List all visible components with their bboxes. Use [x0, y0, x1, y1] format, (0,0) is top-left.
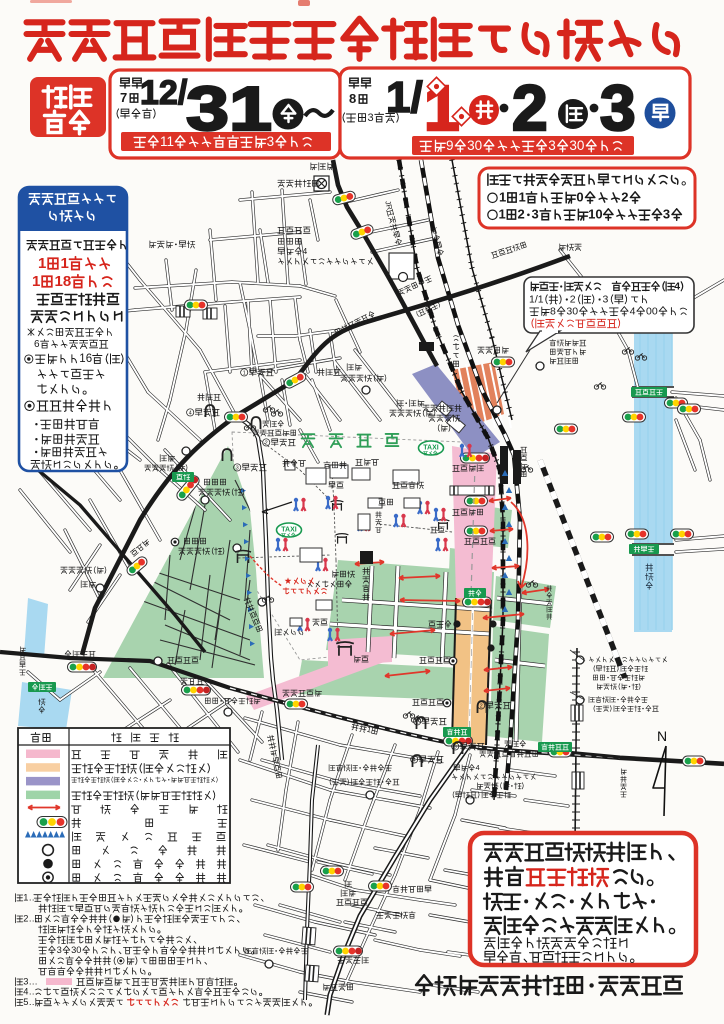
svg-text:TAXI: TAXI	[423, 445, 438, 452]
svg-text:4: 4	[674, 280, 680, 292]
svg-text:1…: 1…	[23, 892, 37, 902]
svg-text:30: 30	[71, 945, 81, 955]
svg-text:7: 7	[120, 90, 127, 105]
svg-text:9: 9	[446, 138, 454, 153]
svg-text:2: 2	[512, 72, 548, 144]
svg-text:4: 4	[413, 757, 416, 763]
svg-text:2: 2	[480, 703, 483, 709]
svg-text:2: 2	[570, 293, 576, 305]
svg-text:2: 2	[621, 189, 628, 204]
svg-text:5…: 5…	[23, 997, 37, 1007]
svg-text:3: 3	[600, 72, 636, 144]
svg-text:30: 30	[467, 138, 482, 153]
svg-text:3: 3	[57, 945, 62, 955]
svg-text:1: 1	[499, 206, 506, 221]
svg-text:4…: 4…	[23, 986, 37, 996]
svg-text:N: N	[657, 728, 667, 744]
svg-text:2: 2	[518, 206, 525, 221]
svg-text:4: 4	[476, 763, 480, 772]
svg-text:3: 3	[548, 138, 556, 153]
svg-text:TAXI: TAXI	[281, 527, 296, 534]
svg-text:1/: 1/	[386, 73, 423, 122]
svg-text:2: 2	[265, 440, 268, 446]
svg-text:1: 1	[243, 370, 246, 376]
svg-text:4: 4	[630, 305, 636, 317]
svg-text:6: 6	[34, 339, 40, 350]
svg-text:8: 8	[550, 305, 556, 317]
svg-text:12/: 12/	[140, 74, 188, 112]
svg-text:2…: 2…	[23, 913, 37, 923]
svg-text:00: 00	[646, 305, 658, 317]
svg-text:1: 1	[32, 273, 40, 290]
svg-text:30: 30	[569, 138, 584, 153]
svg-text:8: 8	[349, 91, 356, 106]
svg-text:4: 4	[189, 410, 192, 416]
svg-text:1: 1	[519, 189, 526, 204]
svg-text:0: 0	[576, 189, 583, 204]
svg-text:3: 3	[236, 465, 239, 471]
svg-text:10: 10	[588, 206, 602, 221]
svg-text:16: 16	[79, 353, 92, 365]
svg-text:1: 1	[61, 255, 69, 272]
svg-text:3: 3	[532, 206, 539, 221]
svg-text:3: 3	[454, 744, 457, 750]
svg-text:1: 1	[416, 719, 419, 725]
svg-text:3: 3	[267, 134, 275, 149]
svg-text:4: 4	[303, 246, 308, 256]
svg-text:1/1: 1/1	[529, 293, 544, 305]
svg-text:3: 3	[663, 206, 670, 221]
svg-text:3: 3	[368, 112, 374, 124]
svg-text:30: 30	[566, 305, 578, 317]
svg-text:18: 18	[55, 273, 72, 290]
svg-text:1: 1	[38, 255, 46, 272]
svg-text:3: 3	[603, 293, 609, 305]
svg-text:3…: 3…	[23, 976, 37, 986]
svg-text:1: 1	[499, 189, 506, 204]
svg-text:11: 11	[160, 134, 174, 149]
